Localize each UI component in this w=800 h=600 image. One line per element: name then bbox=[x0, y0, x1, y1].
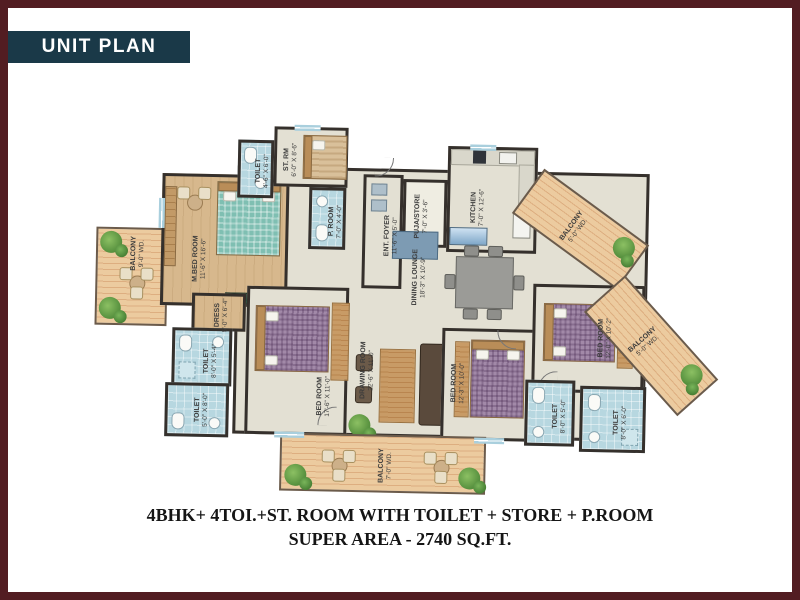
room-name: KITCHEN bbox=[469, 192, 479, 223]
chair-icon bbox=[198, 187, 211, 200]
room-label-toilet-bedroom-2: TOILET 8'-0" X 5'-0" bbox=[551, 399, 569, 433]
washbasin-icon bbox=[254, 177, 266, 189]
bedside-rug bbox=[330, 303, 350, 381]
floor-plan: BALCONY 9'-0" WD. M.BED ROOM 11'-6" X 16… bbox=[91, 97, 711, 508]
window-icon bbox=[158, 198, 165, 228]
plant-icon bbox=[676, 360, 707, 391]
room-name: TOILET bbox=[202, 348, 212, 373]
chair-icon bbox=[119, 267, 132, 280]
dining-chair-icon bbox=[464, 245, 479, 256]
plant-icon bbox=[458, 467, 480, 489]
chair-icon bbox=[343, 450, 356, 463]
unit-plan-badge: UNIT PLAN bbox=[8, 31, 190, 63]
room-label-balcony-kitchen: BALCONY 5'-0" WD. bbox=[558, 209, 593, 247]
toilet-icon bbox=[244, 147, 257, 164]
toilet-bedroom-3: TOILET 8'-0" X 6'-0" bbox=[579, 386, 646, 453]
pillow bbox=[265, 355, 278, 365]
main-entry-door-arc bbox=[375, 157, 394, 176]
caption: 4BHK+ 4TOI.+ST. ROOM WITH TOILET + STORE… bbox=[0, 503, 800, 551]
window-icon bbox=[474, 438, 504, 445]
crockery-console bbox=[392, 231, 439, 260]
room-label-balcony-bottom: BALCONY 7'-0" WD. bbox=[376, 448, 394, 483]
room-name: TOILET bbox=[551, 404, 561, 429]
pillow bbox=[312, 140, 325, 150]
room-dims: 8'-0" X 5'-0" bbox=[560, 399, 569, 433]
room-dims: 5'-0" WD. bbox=[567, 217, 590, 244]
bedroom-table-set bbox=[177, 184, 212, 219]
toilet-icon bbox=[588, 394, 601, 411]
armchair-icon bbox=[356, 354, 373, 371]
toilet-master: TOILET 4'-6" X 6'-0" bbox=[237, 140, 274, 199]
pillow bbox=[223, 191, 236, 201]
washbasin-icon bbox=[208, 417, 220, 429]
armchair-icon bbox=[355, 386, 372, 403]
window-icon bbox=[274, 431, 304, 438]
toilet-icon bbox=[315, 224, 328, 241]
kitchen-cabinet bbox=[449, 227, 487, 246]
room-label-toilet-master-2: TOILET 8'-0" X 5'-4" bbox=[202, 344, 220, 378]
room-name: M.BED ROOM bbox=[191, 235, 201, 281]
room-name: BALCONY bbox=[558, 209, 586, 242]
dining-chair-icon bbox=[444, 274, 455, 289]
shower-icon bbox=[178, 361, 195, 378]
dining-chair-icon bbox=[513, 275, 524, 290]
pillow bbox=[266, 311, 279, 321]
toilet-icon bbox=[171, 412, 184, 429]
pillow bbox=[554, 308, 567, 318]
toilet-icon bbox=[532, 387, 545, 404]
wardrobe bbox=[164, 186, 178, 266]
patio-table-set bbox=[423, 450, 458, 485]
chair-icon bbox=[434, 471, 447, 484]
room-dims: 5'-0" WD. bbox=[635, 334, 661, 359]
p-room: P. ROOM 7'-0" X 4'-0" bbox=[308, 187, 346, 250]
chair-icon bbox=[177, 186, 190, 199]
plant-icon bbox=[100, 231, 122, 253]
window-icon bbox=[470, 144, 496, 151]
toilet-icon bbox=[179, 334, 192, 351]
single-bed bbox=[303, 135, 348, 180]
toilet-bedroom-2: TOILET 8'-0" X 5'-0" bbox=[524, 380, 575, 447]
room-name: BALCONY bbox=[376, 448, 386, 483]
chair-icon bbox=[424, 452, 437, 465]
washbasin-icon bbox=[316, 195, 328, 207]
room-dims: 11'-6" X 16'-6" bbox=[200, 238, 209, 279]
dining-table bbox=[455, 256, 514, 309]
room-dims: 7'-0" X 3'-6" bbox=[422, 200, 431, 234]
room-label-kitchen: KITCHEN 7'-0" X 12'-6" bbox=[469, 189, 487, 227]
shoe-cabinet bbox=[371, 183, 387, 195]
plant-icon bbox=[284, 464, 306, 486]
washbasin-icon bbox=[212, 336, 224, 348]
pillow bbox=[507, 350, 520, 360]
dining-chair-icon bbox=[463, 308, 478, 319]
room-dims: 6'-0" X 8'-6" bbox=[291, 143, 300, 177]
room-label-master-bedroom: M.BED ROOM 11'-6" X 16'-6" bbox=[191, 235, 209, 282]
shoe-cabinet bbox=[371, 199, 387, 211]
room-name: TOILET bbox=[193, 397, 203, 422]
chair-icon bbox=[140, 268, 153, 281]
dining-chair-icon bbox=[488, 246, 503, 257]
room-dims: 7'-0" X 12'-6" bbox=[478, 189, 487, 227]
patio-table-set bbox=[321, 447, 356, 482]
toilet-master-2: TOILET 8'-0" X 5'-4" bbox=[171, 327, 232, 386]
room-name: BALCONY bbox=[627, 325, 659, 355]
dress-room: DRESS 5'-0" X 6'-4" bbox=[191, 293, 246, 332]
room-dims: 5'-0" X 6'-4" bbox=[222, 298, 231, 332]
pillow bbox=[476, 350, 489, 360]
window-icon bbox=[295, 125, 321, 132]
chair-icon bbox=[130, 286, 143, 299]
room-dims: 7'-0" WD. bbox=[386, 452, 395, 480]
bedroom-1: BED ROOM 17'-6" X 11'-0" bbox=[244, 286, 349, 436]
dining-chair-icon bbox=[487, 309, 502, 320]
toilet-bedroom-1: TOILET 5'-0" X 8'-0" bbox=[164, 382, 229, 437]
drawing-room-rug bbox=[378, 349, 416, 424]
room-label-store-room: ST. RM 6'-0" X 8'-6" bbox=[282, 143, 300, 177]
balcony-left: BALCONY 9'-0" WD. bbox=[94, 227, 168, 326]
room-name: DRESS bbox=[213, 303, 223, 327]
washbasin-icon bbox=[532, 426, 544, 438]
pillow bbox=[553, 346, 566, 356]
washbasin-icon bbox=[588, 431, 600, 443]
plant-icon bbox=[99, 297, 121, 319]
door-arc bbox=[317, 406, 336, 425]
room-label-p-room: P. ROOM 7'-0" X 4'-0" bbox=[327, 205, 345, 239]
patio-table-set bbox=[119, 265, 154, 300]
unit-plan-badge-label: UNIT PLAN bbox=[42, 36, 157, 58]
chair-icon bbox=[332, 469, 345, 482]
room-label-balcony-right: BALCONY 5'-0" WD. bbox=[627, 325, 664, 361]
headboard bbox=[304, 136, 313, 178]
balcony-bottom: BALCONY 7'-0" WD. bbox=[279, 432, 486, 494]
double-bed bbox=[470, 339, 526, 418]
hob-icon bbox=[473, 150, 486, 163]
chair-icon bbox=[322, 449, 335, 462]
plant-icon bbox=[609, 233, 640, 264]
room-name: ST. RM bbox=[282, 148, 292, 171]
double-bed bbox=[255, 305, 330, 373]
sink-icon bbox=[499, 152, 517, 164]
caption-line-1: 4BHK+ 4TOI.+ST. ROOM WITH TOILET + STORE… bbox=[0, 503, 800, 527]
caption-line-2: SUPER AREA - 2740 SQ.FT. bbox=[0, 527, 800, 551]
room-dims: 7'-0" X 4'-0" bbox=[336, 205, 345, 239]
chair-icon bbox=[445, 452, 458, 465]
room-name: TOILET bbox=[611, 410, 621, 435]
room-dims: 8'-0" X 5'-4" bbox=[211, 344, 220, 378]
room-name: ENT. FOYER bbox=[382, 215, 392, 256]
room-dims: 9'-0" WD. bbox=[138, 240, 147, 268]
unit-plan-page: UNIT PLAN BALCONY 9'-0" WD. bbox=[0, 0, 800, 600]
store-room: ST. RM 6'-0" X 8'-6" bbox=[273, 126, 348, 188]
shower-icon bbox=[621, 429, 638, 446]
bedside-rug bbox=[454, 341, 471, 417]
